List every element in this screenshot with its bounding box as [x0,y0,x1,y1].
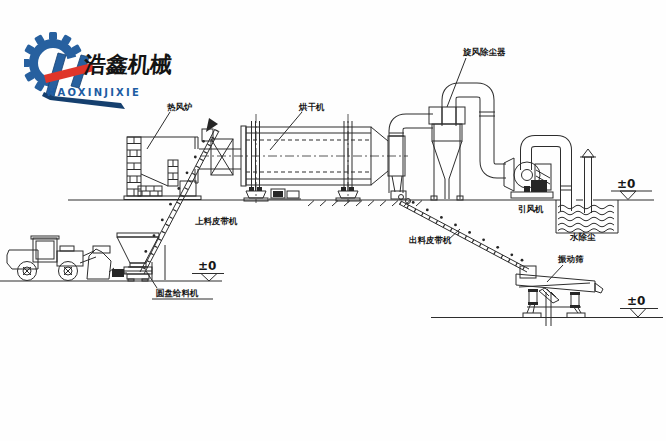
label-induced-draft-fan: 引风机 [518,204,544,214]
rotary-dryer-drawing [199,114,411,204]
label-disc-feeder: 圆盘给料机 [156,288,199,298]
company-name-chinese: 浩鑫机械 [83,50,174,80]
elevation-text: ±0 [627,294,645,308]
elevation-text: ±0 [198,259,216,273]
label-water-dust-collector: 水除尘 [569,232,596,242]
elevation-marker-lower-right: ±0 [620,294,658,317]
elevation-marker-upper-right: ±0 [611,177,652,200]
company-name-english: HAOXINJIXIE [47,87,141,98]
label-discharge-belt-conveyor: 出料皮带机 [409,235,452,245]
label-cyclone-dust-collector: 旋风除尘器 [462,47,506,57]
cyclone-outlet-pipe [449,90,506,171]
screenshot-root: ±0 ±0 ±0 热风炉 烘干机 旋风除尘器 上料皮带机 出 [0,0,666,441]
label-feed-belt-conveyor: 上料皮带机 [195,216,238,226]
label-dryer: 烘干机 [298,102,325,112]
label-vibrating-screen: 振动筛 [557,254,584,264]
elevation-text: ±0 [617,177,635,191]
elevation-marker-left: ±0 [192,259,224,281]
label-hot-air-furnace: 热风炉 [166,102,193,112]
disc-feeder-drawing [112,233,159,281]
wheel-loader-drawing [7,236,114,281]
hot-air-furnace-drawing [124,137,201,200]
